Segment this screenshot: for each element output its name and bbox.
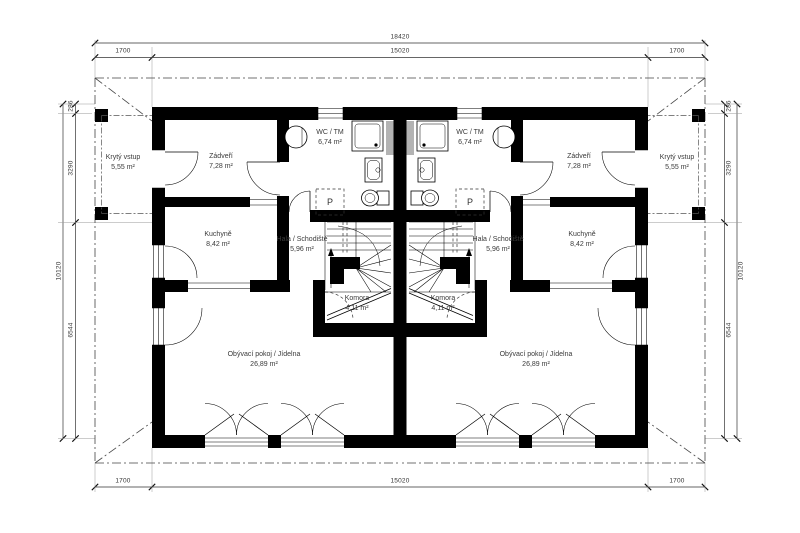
terrace-door-1 <box>205 404 268 447</box>
dim-right-total: 10120 <box>738 261 745 280</box>
dim-left-seg1: 286 <box>68 100 75 111</box>
wc-window <box>318 107 343 120</box>
dim-left-seg3: 6544 <box>68 322 75 337</box>
living-window <box>152 308 202 345</box>
room-label-right-obyvaci: Obývací pokoj / Jídelna 26,89 m² <box>500 350 573 370</box>
room-label-left-obyvaci: Obývací pokoj / Jídelna 26,89 m² <box>228 350 301 370</box>
dim-left-total: 10120 <box>56 261 63 280</box>
right-unit-graphics <box>400 40 742 492</box>
room-label-right-kryty-vstup: Krytý vstup 5,55 m² <box>660 153 695 173</box>
room-label-left-kuchyne: Kuchyně 8,42 m² <box>204 230 231 250</box>
dim-right-seg1: 286 <box>726 100 733 111</box>
walls <box>152 107 400 448</box>
floor-plan-drawing <box>0 0 800 533</box>
dim-top-left: 1700 <box>115 48 130 55</box>
toilet-icon <box>362 190 390 206</box>
kitchen-window <box>152 245 197 278</box>
room-label-left-hala: Hala / Schodiště 5,96 m² <box>277 235 328 255</box>
hall-door <box>247 162 280 195</box>
dim-bottom-mid: 15020 <box>390 478 409 485</box>
room-label-right-hala: Hala / Schodiště 5,96 m² <box>473 235 524 255</box>
dim-bottom-left: 1700 <box>115 478 130 485</box>
dim-bottom-right: 1700 <box>669 478 684 485</box>
entrance-door <box>152 150 198 188</box>
dim-top-mid: 15020 <box>390 48 409 55</box>
living-passage <box>188 283 250 289</box>
room-label-left-komora: Komora 4,11 m² <box>345 294 370 314</box>
sink-icon <box>365 158 382 182</box>
room-label-right-komora: Komora 4,11 m² <box>431 294 456 314</box>
boiler-icon <box>285 126 307 148</box>
shower-icon <box>352 121 383 151</box>
washer-label-left: P <box>327 197 333 207</box>
dim-top-right: 1700 <box>669 48 684 55</box>
left-unit-graphics <box>58 40 400 492</box>
floor-plan-canvas: Zádveří 7,28 m² WC / TM 6,74 m² Kuchyně … <box>0 0 800 533</box>
dim-top-total: 18420 <box>390 34 409 41</box>
wc-door <box>289 191 310 212</box>
room-label-left-zadveri: Zádveří 7,28 m² <box>209 152 233 172</box>
room-label-right-zadveri: Zádveří 7,28 m² <box>567 152 591 172</box>
room-label-right-kuchyne: Kuchyně 8,42 m² <box>568 230 595 250</box>
room-label-right-wc: WC / TM 6,74 m² <box>456 128 483 148</box>
washer-label-right: P <box>467 197 473 207</box>
room-label-left-kryty-vstup: Krytý vstup 5,55 m² <box>106 153 141 173</box>
terrace-door-2 <box>281 404 344 447</box>
dim-right-seg2: 3290 <box>726 160 733 175</box>
dim-left-seg2: 3290 <box>68 160 75 175</box>
dim-right-seg3: 6544 <box>726 322 733 337</box>
room-label-left-wc: WC / TM 6,74 m² <box>316 128 343 148</box>
